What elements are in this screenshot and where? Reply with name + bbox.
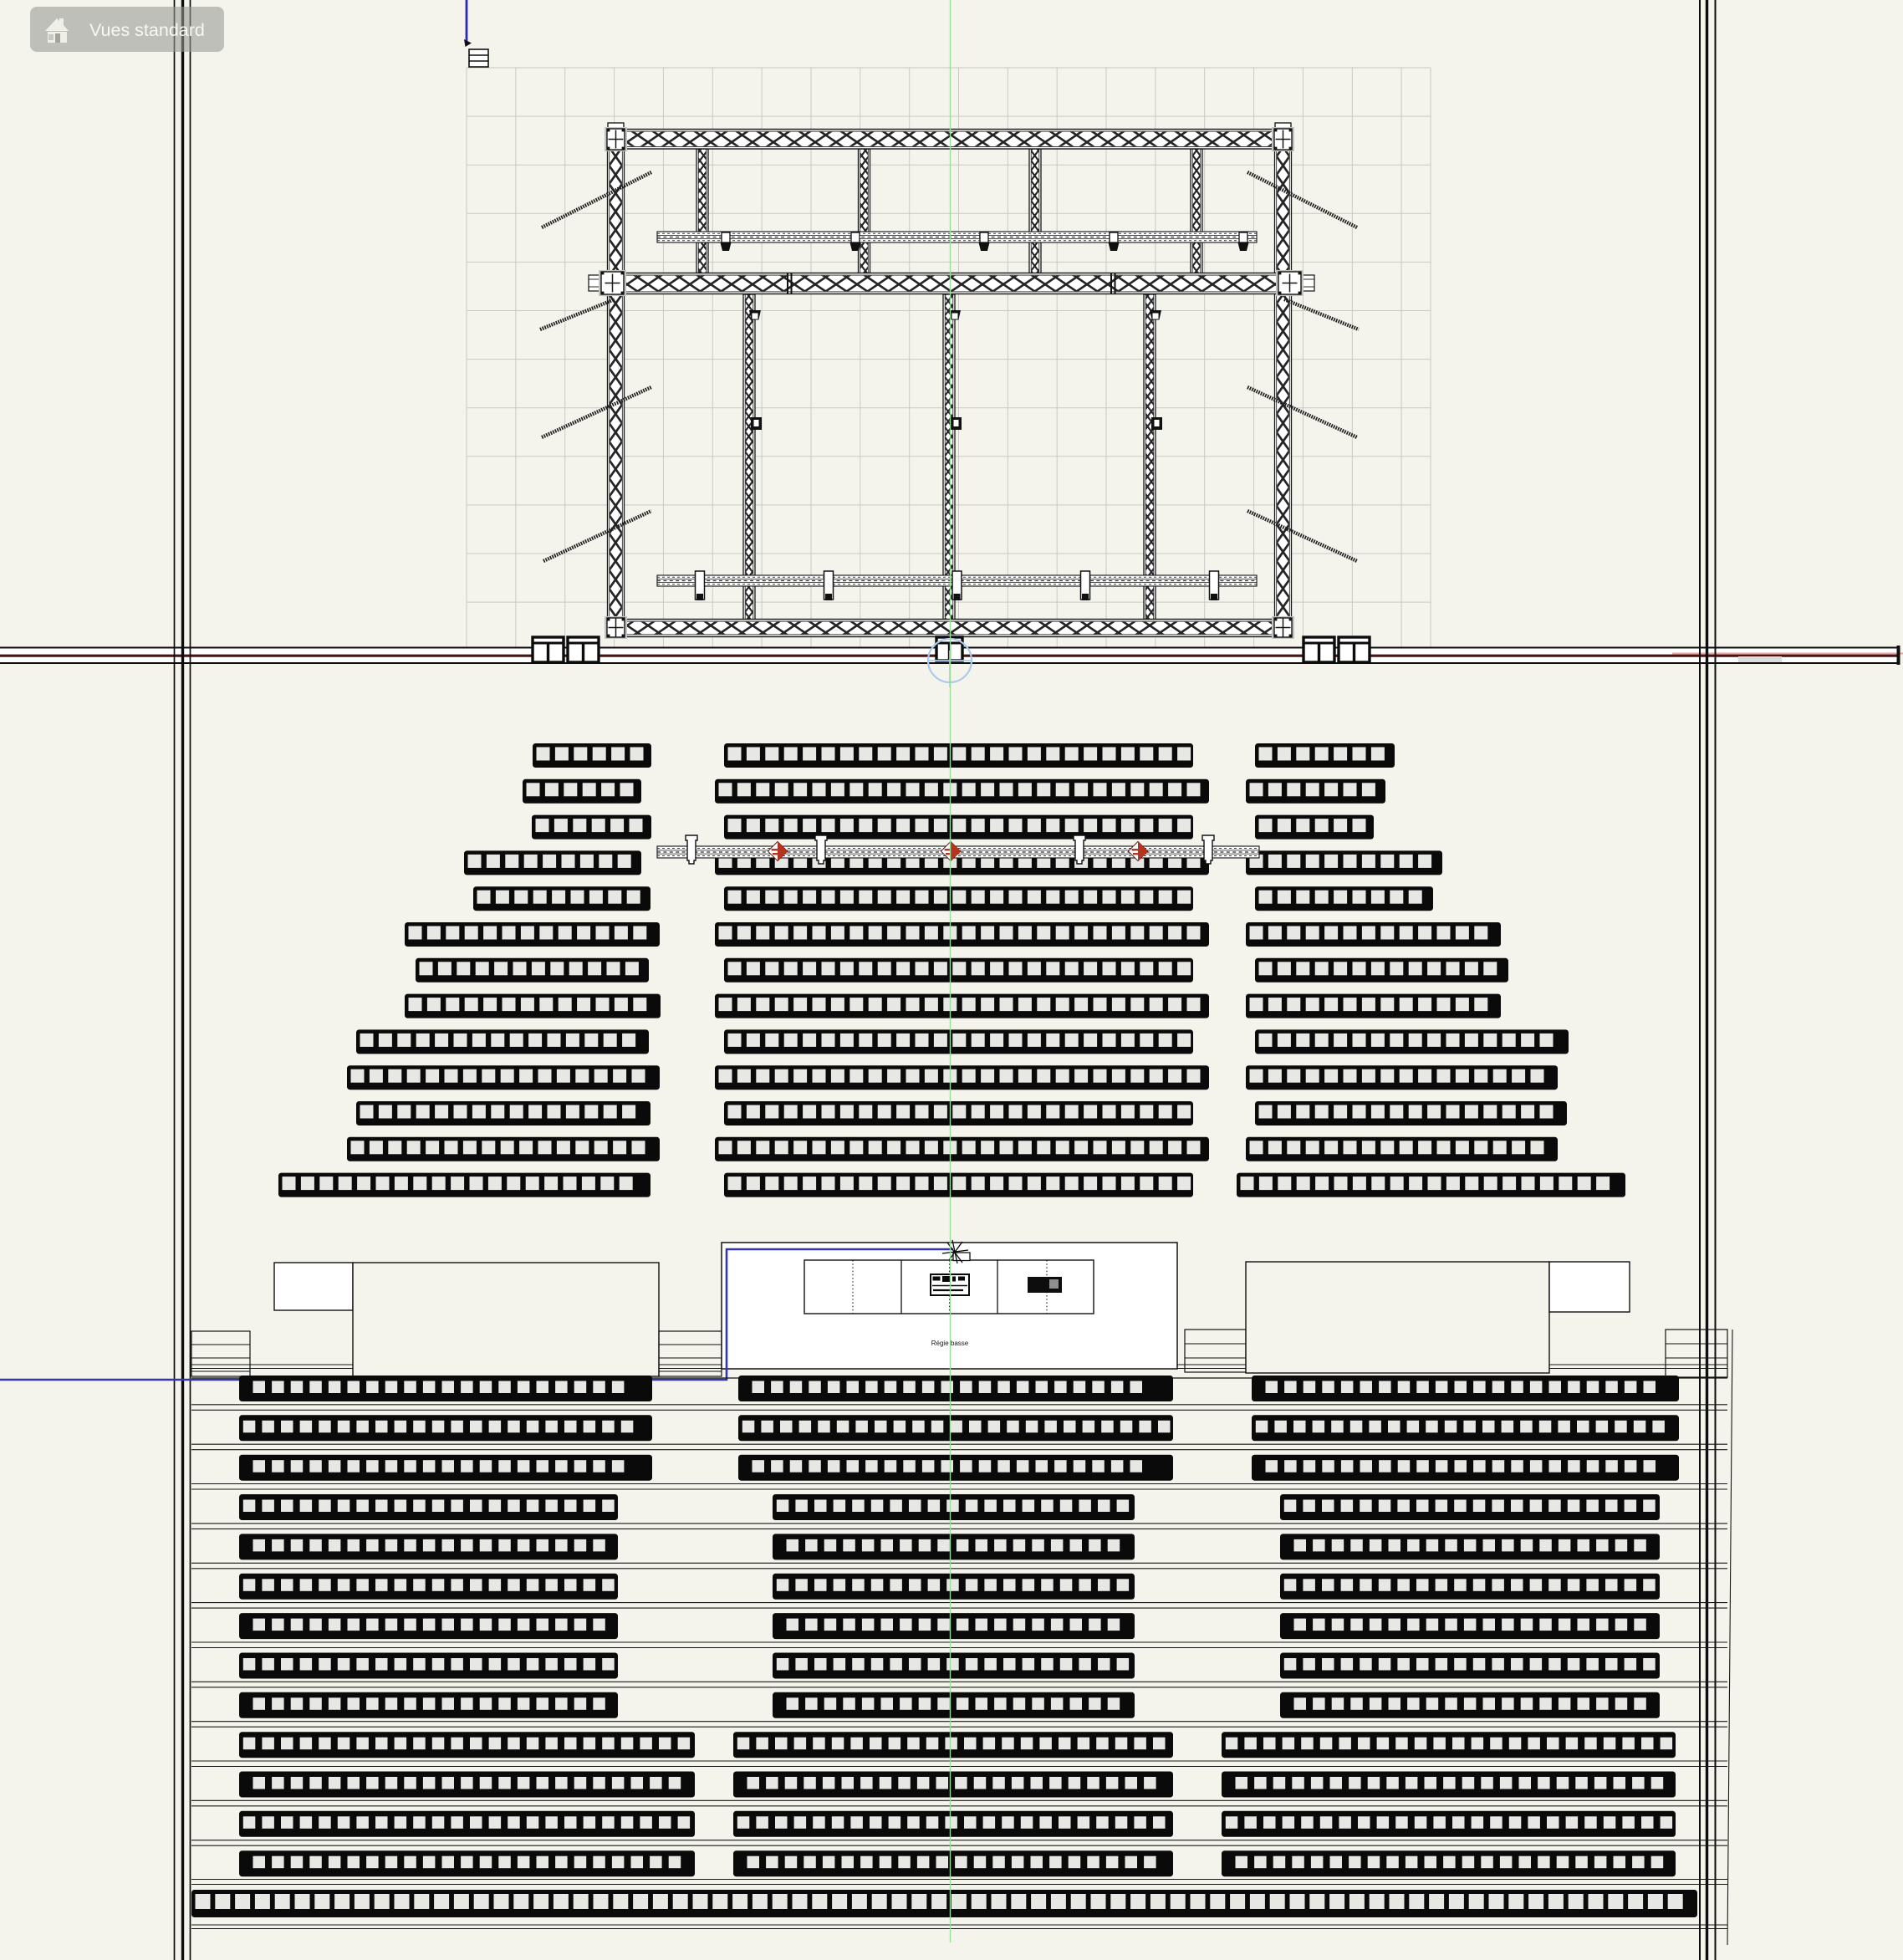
svg-text:Vues standard: Vues standard [89,20,205,40]
